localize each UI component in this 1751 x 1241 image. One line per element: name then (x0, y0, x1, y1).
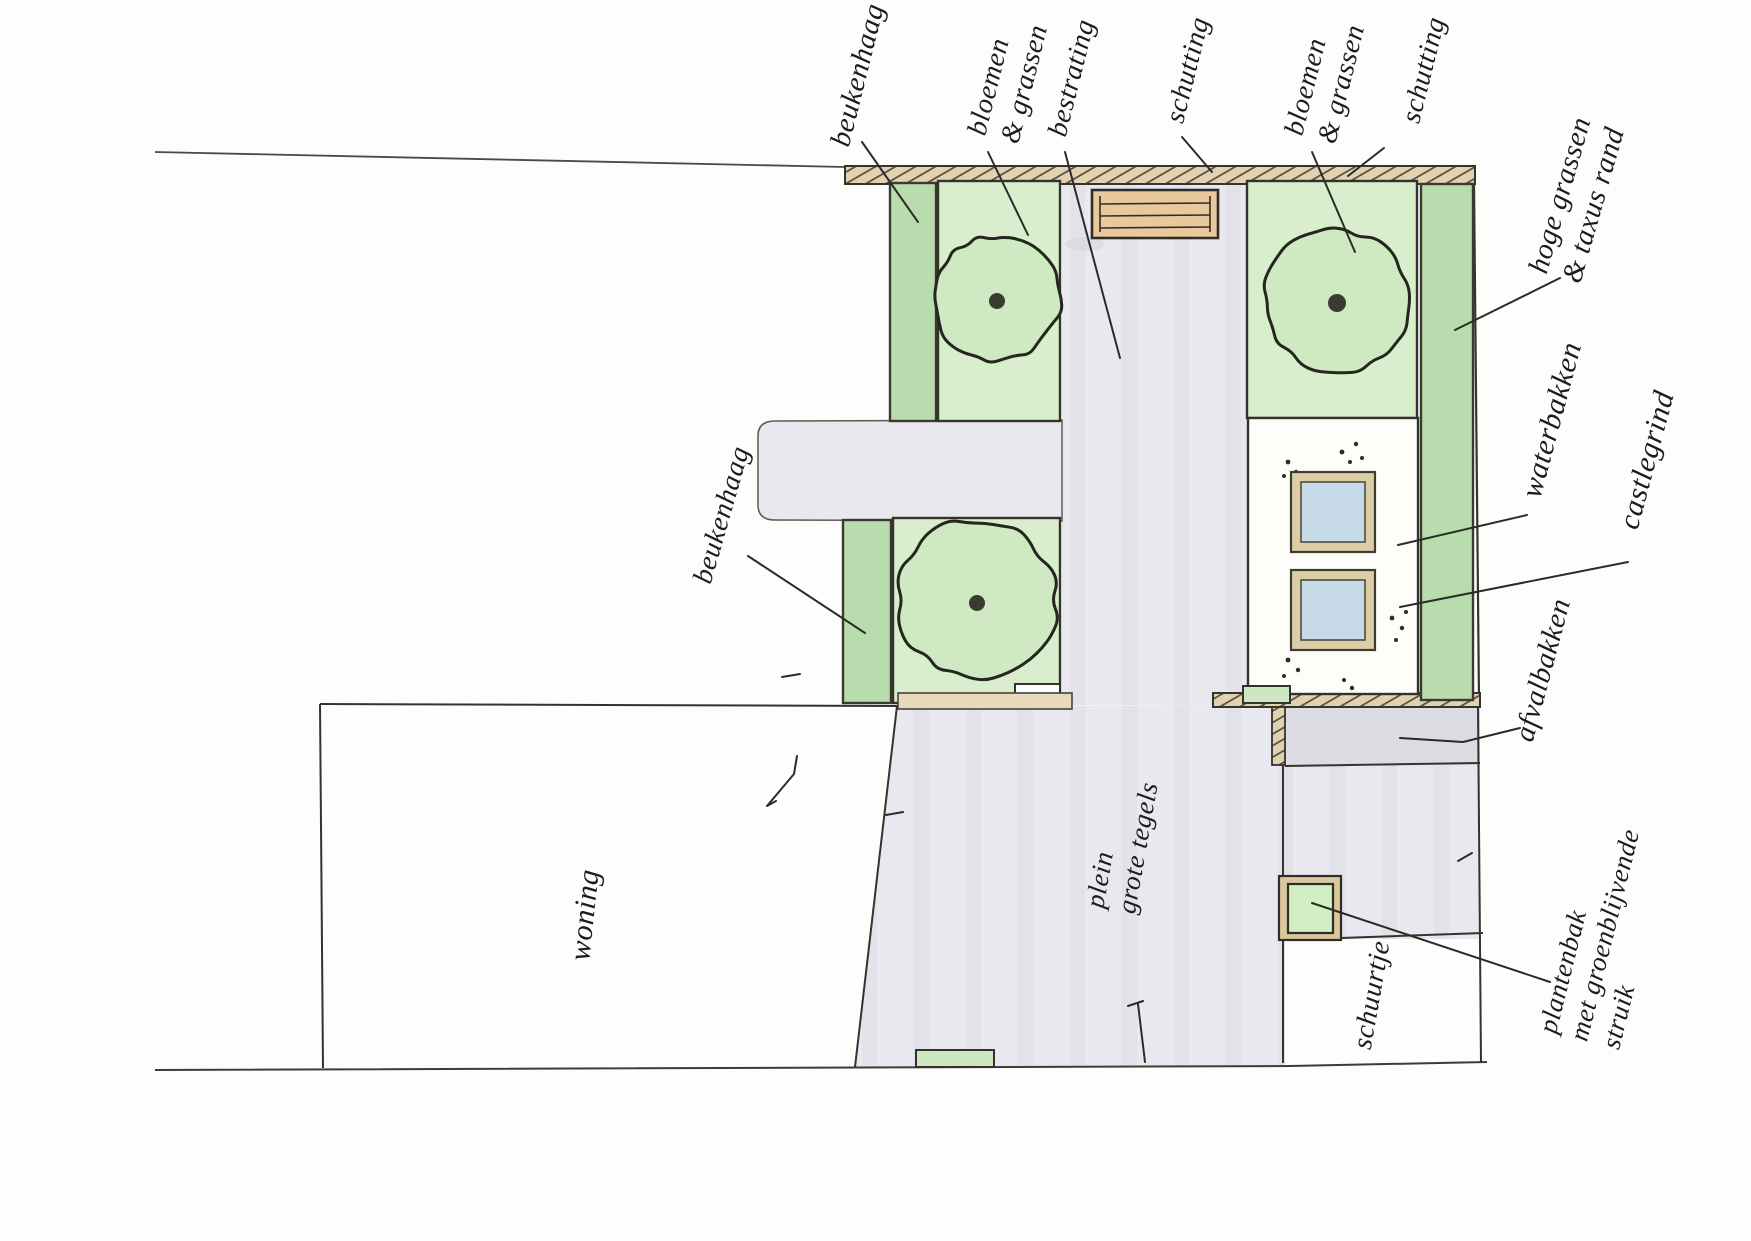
beech-hedge-strip-top (890, 183, 936, 421)
water-surface (1301, 580, 1365, 640)
waste-bins-corridor (1285, 707, 1480, 765)
plaza-paving (855, 705, 1285, 1067)
tree-trunk-dot (1328, 294, 1346, 312)
boundary-line-right (1474, 184, 1479, 700)
tree-trunk-dot (989, 293, 1005, 309)
fence-post (1272, 707, 1285, 765)
gravel-court (1248, 418, 1418, 694)
central-path (1062, 184, 1247, 705)
planter-box (1279, 876, 1341, 940)
water-basin-1 (1291, 472, 1375, 552)
house-outline (320, 704, 897, 1068)
tree-trunk-dot (969, 595, 985, 611)
boundary-line-top (155, 152, 845, 167)
tall-grass-taxus-strip (1421, 184, 1473, 700)
boundary-line-bottom (155, 1062, 1487, 1070)
water-basin-2 (1291, 570, 1375, 650)
garden-plan-sketch: beukenhaagbloemen & grassenbestratingsch… (0, 0, 1751, 1241)
plan-drawing (0, 0, 1751, 1241)
fence-planting-strip (1243, 686, 1290, 703)
beech-hedge-strip-mid (843, 520, 891, 703)
bottom-edge-planter (916, 1050, 994, 1067)
path-spur (758, 420, 1062, 521)
paving-edge-strip (898, 693, 1072, 709)
water-surface (1301, 482, 1365, 542)
